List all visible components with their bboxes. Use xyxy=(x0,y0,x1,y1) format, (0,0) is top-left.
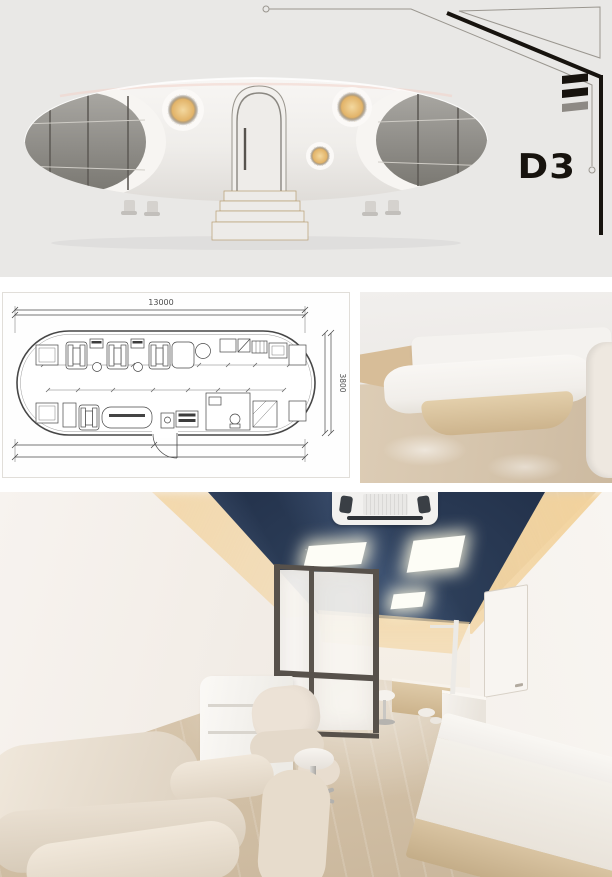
interior-photo xyxy=(0,492,612,877)
ac-grille xyxy=(363,494,408,515)
ac-vent-right xyxy=(417,495,431,514)
bench-photo xyxy=(360,292,612,483)
entry-door xyxy=(232,86,286,199)
plan-entry-door xyxy=(152,430,178,458)
left-window xyxy=(18,86,166,198)
plan-dim-top xyxy=(12,306,308,333)
entry-steps xyxy=(212,191,308,240)
design-board: D3 13000 xyxy=(0,0,612,877)
partition-frosted-panel xyxy=(314,572,373,730)
hero-art xyxy=(0,0,612,277)
recliner-edge xyxy=(586,342,612,478)
decor-circle-start xyxy=(263,6,269,12)
hero-render-section: D3 xyxy=(0,0,612,277)
bar-3 xyxy=(562,101,588,112)
brand-logo: D3 xyxy=(518,149,576,183)
floor-plan-panel: 13000 xyxy=(2,292,350,478)
decor-bars xyxy=(562,73,588,112)
bar-1 xyxy=(562,73,588,84)
ceiling-ac-unit xyxy=(332,492,438,525)
floor-plan-drawing: 13000 xyxy=(3,293,349,477)
decor-circle-end xyxy=(589,167,595,173)
pod-building-render xyxy=(18,78,500,250)
ac-display-strip xyxy=(347,516,423,520)
floor-reflection xyxy=(470,447,580,483)
plan-width-label: 13000 xyxy=(148,298,173,307)
flush-door xyxy=(484,584,528,698)
ceiling-light-panel xyxy=(407,535,466,572)
door-handle xyxy=(515,683,523,687)
right-window xyxy=(356,86,500,194)
bar-2 xyxy=(562,87,588,98)
ceiling-light-panel xyxy=(390,592,425,610)
floor-object xyxy=(418,708,435,717)
decor-triangle xyxy=(459,7,600,58)
plan-dim-right xyxy=(322,330,334,436)
plan-massage-chairs xyxy=(66,342,170,369)
partition-frame xyxy=(373,569,379,733)
accent-diagonal xyxy=(447,13,601,77)
plan-depth-label: 3800 xyxy=(338,373,347,392)
recliner-sofa-side xyxy=(256,768,332,877)
ac-vent-left xyxy=(339,495,353,514)
